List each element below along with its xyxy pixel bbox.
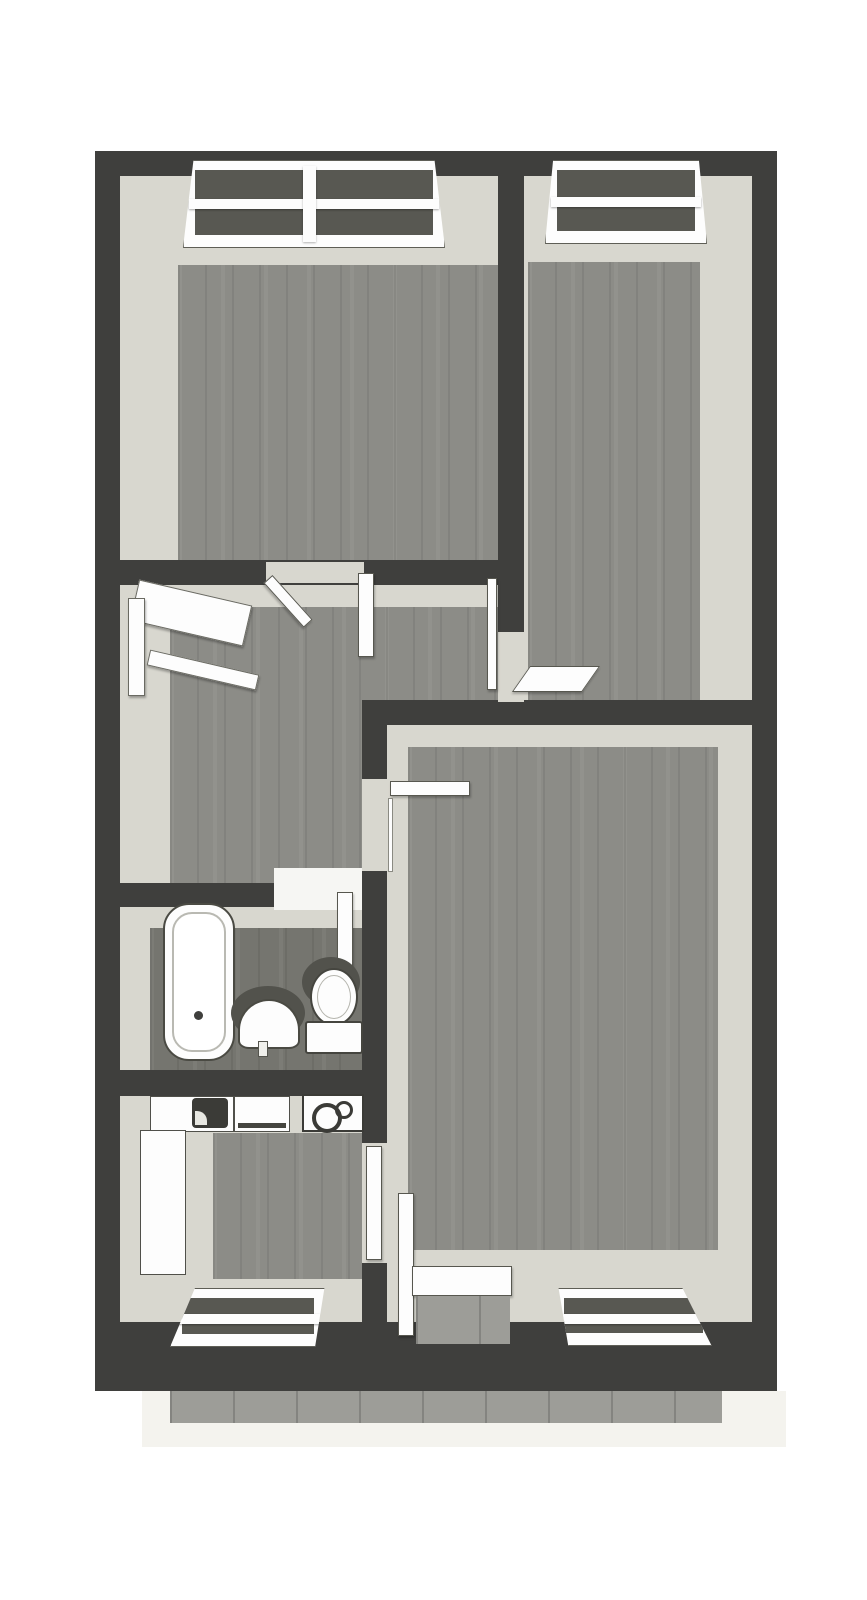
wall-exterior-left [95, 151, 120, 1391]
kitchen-sink-basin [192, 1098, 228, 1128]
bathtub [163, 903, 235, 1061]
balcony-tiles [170, 1391, 722, 1423]
door-living-room-frame [388, 798, 393, 872]
living-room-floor [408, 747, 718, 1250]
window-bedroom-left-mullion [303, 166, 316, 242]
wall-living-room-top [362, 700, 777, 725]
door-balcony-threshold [412, 1266, 512, 1296]
door-bedroom-right-frame [487, 578, 497, 690]
hallway-floor-lower [170, 725, 362, 883]
wall-kitchen-top [95, 1070, 387, 1096]
door-balcony-panel [398, 1193, 414, 1336]
door-bedroom-left-panel-open [358, 573, 374, 657]
window-hallway-jamb [128, 598, 145, 696]
doorway-hall-to-living-room [362, 779, 387, 871]
floor-plan-canvas [0, 0, 867, 1600]
doorway-hall-to-bedroom-left [266, 562, 364, 583]
kitchen-floor [213, 1133, 362, 1279]
kitchen-counter-mid [234, 1096, 290, 1132]
toilet-bowl [310, 968, 358, 1026]
sink-tap [258, 1041, 268, 1057]
door-living-room-panel [390, 781, 470, 796]
kitchen-stove [302, 1094, 364, 1132]
toilet-cistern [305, 1021, 363, 1054]
door-balcony-tiles [416, 1296, 510, 1344]
bedroom-top-left-floor [178, 265, 498, 560]
window-kitchen [170, 1288, 326, 1347]
window-bedroom-right [545, 160, 707, 244]
bedroom-top-right-floor [528, 262, 700, 725]
wall-exterior-right [752, 151, 777, 1391]
kitchen-counter-left [140, 1130, 186, 1275]
door-kitchen-panel [366, 1146, 382, 1260]
